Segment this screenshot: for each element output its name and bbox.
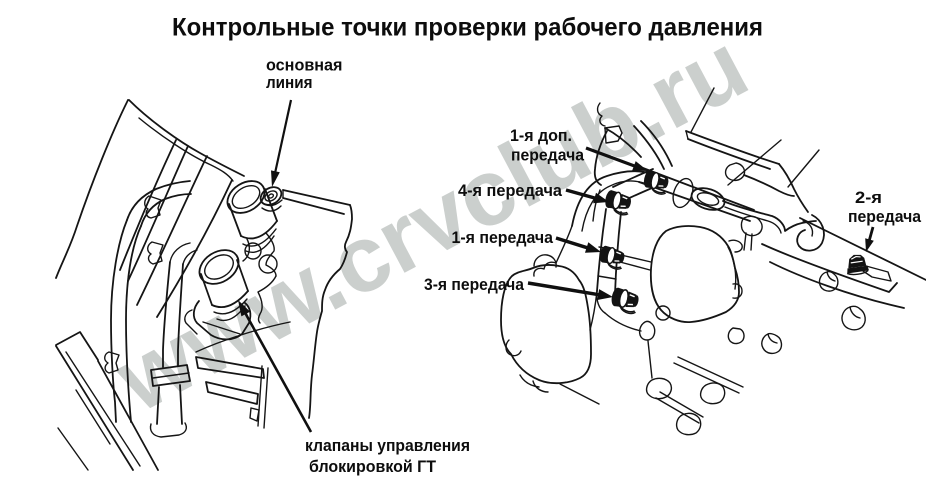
svg-text:2-я: 2-я: [855, 189, 882, 207]
svg-text:передача: передача: [511, 147, 585, 165]
svg-text:1-я передача: 1-я передача: [452, 229, 554, 247]
svg-text:линия: линия: [266, 74, 313, 92]
svg-text:1-я доп.: 1-я доп.: [510, 127, 572, 145]
svg-text:4-я передача: 4-я передача: [458, 182, 563, 200]
svg-text:основная: основная: [266, 57, 343, 75]
svg-text:блокировкой ГТ: блокировкой ГТ: [309, 458, 436, 476]
svg-text:передача: передача: [848, 208, 922, 226]
svg-text:3-я передача: 3-я передача: [424, 276, 525, 294]
svg-text:Контрольные точки проверки раб: Контрольные точки проверки рабочего давл…: [172, 14, 763, 42]
svg-text:клапаны управления: клапаны управления: [305, 437, 470, 455]
